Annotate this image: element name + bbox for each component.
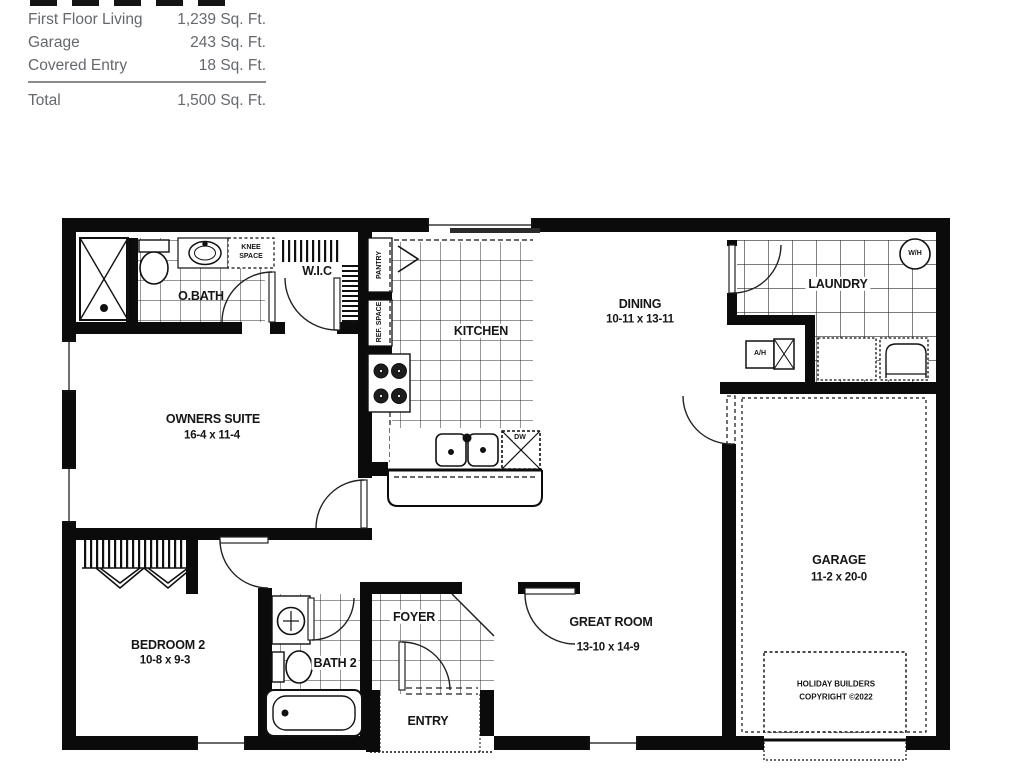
wic-shelf-hatch-side (342, 262, 360, 328)
knee-space-label: KNEE (241, 244, 260, 252)
room-label-owners-suite: OWNERS SUITE (166, 412, 260, 426)
room-dims-owners-suite: 16-4 x 11-4 (184, 429, 240, 442)
floorplan-drawing (0, 0, 1024, 768)
air-handler-x (774, 339, 794, 369)
kitchen-window (427, 218, 540, 233)
room-label-bedroom2: BEDROOM 2 (131, 638, 205, 652)
owners-suite-door (316, 480, 367, 528)
room-dims-great-room: 13-10 x 14-9 (577, 641, 640, 654)
bedroom2-door (220, 537, 268, 588)
room-label-garage: GARAGE (812, 553, 866, 567)
wic-door (285, 278, 340, 330)
room-dims-dining: 10-11 x 13-11 (606, 313, 674, 326)
pantry-label: PANTRY (376, 251, 384, 279)
entry-opening (366, 736, 494, 750)
room-label-bath2: BATH 2 (311, 656, 358, 670)
air-handler-label: A/H (754, 350, 766, 358)
knee-space-label: SPACE (239, 253, 263, 261)
room-label-obath: O.BATH (178, 289, 224, 303)
closet-bifold-doors (96, 568, 192, 588)
room-dims-garage: 11-2 x 20-0 (811, 571, 867, 584)
tub-icon (266, 690, 362, 736)
water-heater-label: W/H (908, 250, 922, 258)
shower (80, 238, 128, 320)
toilet-tank (272, 652, 284, 682)
ref-space-label: REF. SPACE (376, 302, 384, 343)
hall-door (525, 588, 575, 644)
garage-door-panel (764, 740, 906, 760)
room-label-great-room: GREAT ROOM (569, 615, 652, 629)
room-label-dining: DINING (619, 297, 662, 311)
bedroom2-closet-hatch (82, 540, 186, 568)
floorplan-page: First Floor Living 1,239 Sq. Ft. Garage … (0, 0, 1024, 768)
copyright-line2: COPYRIGHT ©2022 (799, 692, 872, 701)
owners-suite-window-2 (62, 467, 76, 523)
garage-entry-door (683, 396, 735, 444)
bedroom2-window (196, 736, 246, 750)
room-label-wic: W.I.C (302, 264, 332, 278)
wic-shelf-hatch (280, 240, 342, 262)
room-label-laundry: LAUNDRY (805, 277, 870, 291)
owners-suite-window (62, 340, 76, 392)
room-label-foyer: FOYER (390, 610, 438, 624)
dishwasher-label: DW (513, 434, 527, 442)
washer-box (818, 338, 876, 380)
stove-icon (368, 354, 410, 412)
copyright-line1: HOLIDAY BUILDERS (797, 679, 875, 688)
island-counter (388, 470, 542, 506)
room-label-kitchen: KITCHEN (451, 324, 511, 338)
great-room-window (588, 736, 638, 750)
toilet-icon (286, 651, 312, 683)
room-dims-bedroom2: 10-8 x 9-3 (140, 654, 190, 667)
room-label-entry: ENTRY (408, 714, 449, 728)
